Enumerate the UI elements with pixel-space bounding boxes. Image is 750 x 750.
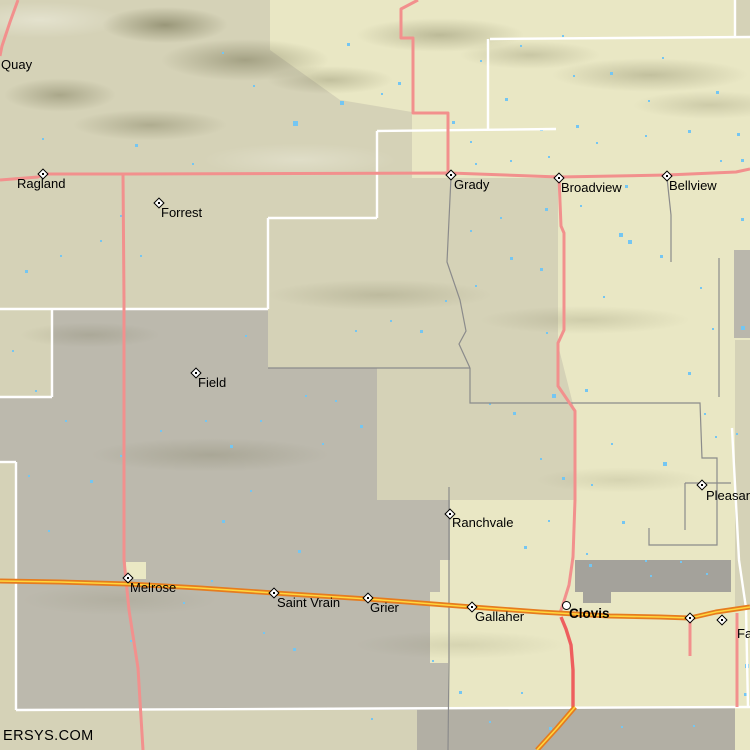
town-label-clovis[interactable]: Clovis [569,607,610,620]
town-label-grier[interactable]: Grier [370,601,399,614]
town-label-gallaher[interactable]: Gallaher [475,610,524,623]
town-label-bellview[interactable]: Bellview [669,179,717,192]
town-label-melrose[interactable]: Melrose [130,581,176,594]
watermark-text: ERSYS.COM [3,728,94,744]
town-label-pleasant-h[interactable]: Pleasant H [706,489,750,502]
town-label-forrest[interactable]: Forrest [161,206,202,219]
map-canvas[interactable]: QuayRaglandForrestGradyBroadviewBellview… [0,0,750,750]
town-label-grady[interactable]: Grady [454,178,489,191]
marker-layer: QuayRaglandForrestGradyBroadviewBellview… [0,0,750,750]
town-label-quay[interactable]: Quay [1,58,32,71]
town-label-ranchvale[interactable]: Ranchvale [452,516,513,529]
town-label-saint-vrain[interactable]: Saint Vrain [277,596,340,609]
town-marker-fa[interactable] [716,614,727,625]
town-label-ragland[interactable]: Ragland [17,177,65,190]
town-label-fa[interactable]: Fa [737,627,750,640]
town-marker-junction[interactable] [684,612,695,623]
town-label-broadview[interactable]: Broadview [561,181,622,194]
town-label-field[interactable]: Field [198,376,226,389]
